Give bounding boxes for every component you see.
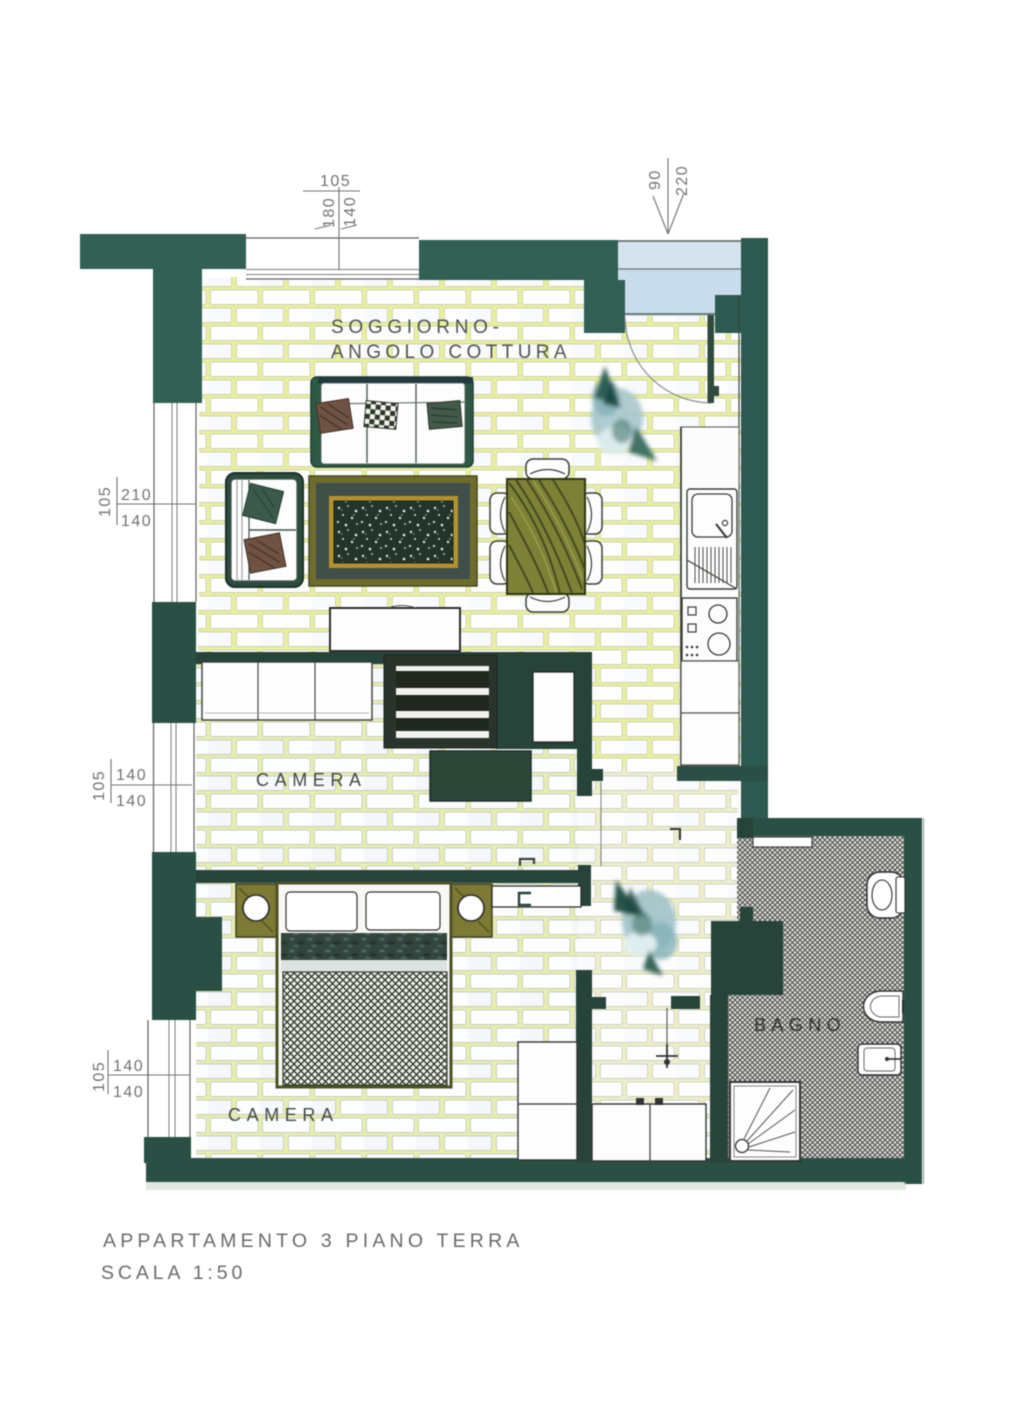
svg-text:140: 140 (116, 767, 147, 784)
svg-text:BAGNO: BAGNO (754, 1015, 846, 1035)
svg-text:105: 105 (97, 486, 114, 517)
svg-text:140: 140 (342, 196, 359, 227)
svg-text:105: 105 (91, 770, 108, 801)
svg-text:CAMERA: CAMERA (256, 770, 367, 790)
svg-text:140: 140 (116, 793, 147, 810)
svg-text:APPARTAMENTO 3 PIANO TERRA: APPARTAMENTO 3 PIANO TERRA (103, 1230, 524, 1252)
svg-text:140: 140 (113, 1084, 144, 1101)
svg-text:140: 140 (113, 1058, 144, 1075)
svg-text:90: 90 (647, 169, 664, 190)
svg-text:180: 180 (321, 197, 338, 228)
svg-text:SCALA 1:50: SCALA 1:50 (101, 1262, 246, 1284)
svg-text:ANGOLO COTTURA: ANGOLO COTTURA (331, 342, 571, 363)
svg-text:210: 210 (121, 487, 152, 504)
svg-text:SOGGIORNO-: SOGGIORNO- (331, 317, 504, 338)
svg-text:105: 105 (91, 1061, 108, 1092)
svg-text:220: 220 (674, 165, 691, 196)
svg-text:CAMERA: CAMERA (228, 1105, 339, 1125)
svg-text:140: 140 (121, 513, 152, 530)
svg-text:105: 105 (320, 173, 351, 190)
